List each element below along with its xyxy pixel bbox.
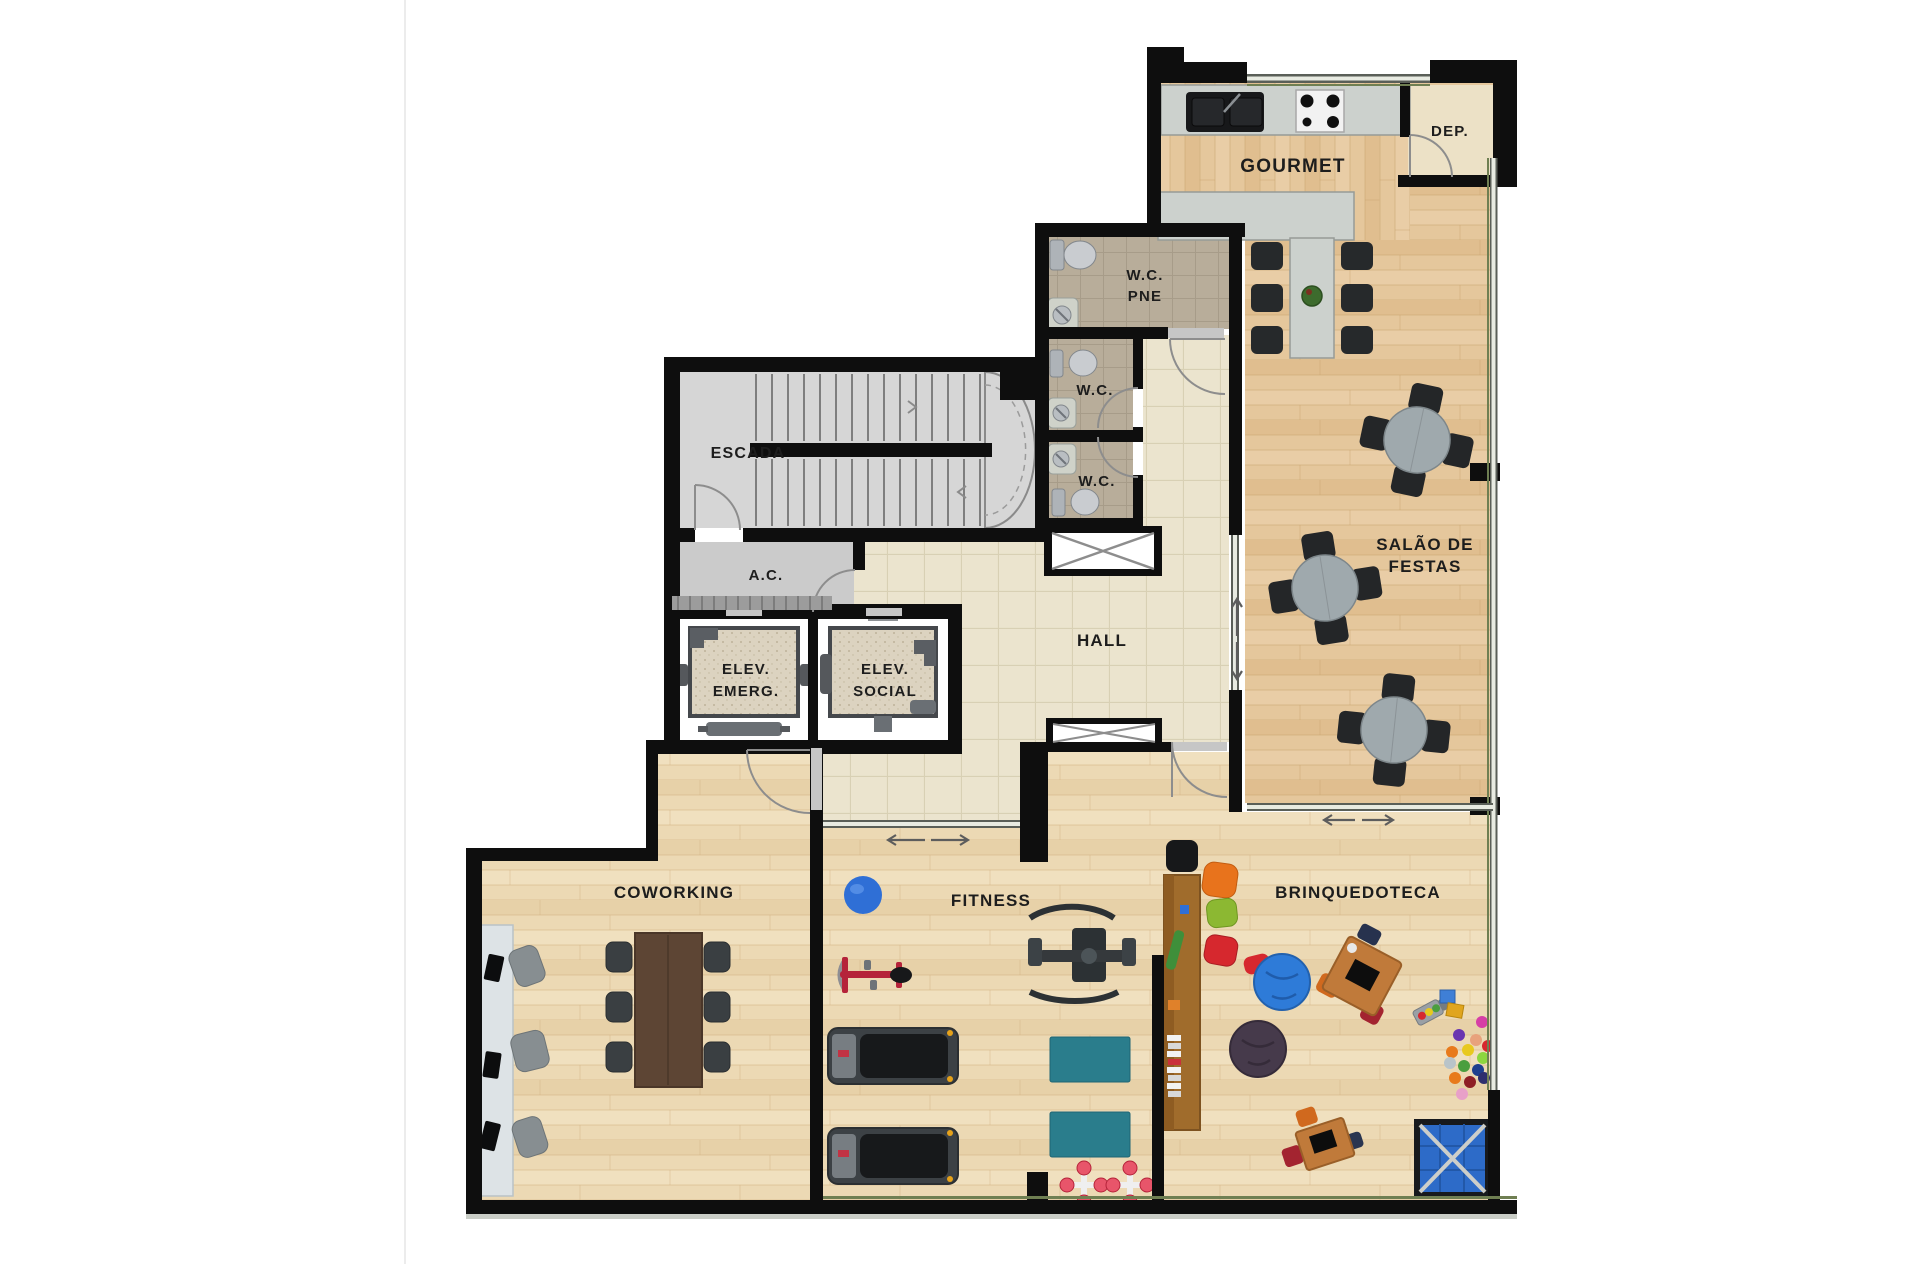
toilet-part (1050, 240, 1064, 270)
toilet (1050, 240, 1096, 270)
exercise-bike-part (864, 960, 871, 970)
walls-part (1000, 357, 1047, 400)
walls-part (853, 542, 865, 570)
walls-part (466, 848, 658, 861)
book-stack-part (1167, 1083, 1181, 1089)
window-east-facade (1487, 158, 1498, 1090)
scattered-balls-part (1476, 1016, 1488, 1028)
walls-part (646, 740, 962, 754)
walls-part (1020, 752, 1048, 862)
walls-part (1035, 327, 1168, 339)
sliding-door-fitness-part (823, 822, 1020, 826)
walls-part (1133, 427, 1143, 439)
dumbbell-set-part (1060, 1178, 1074, 1192)
brinquedoteca-items-part (1168, 1000, 1180, 1010)
walls-part (1147, 62, 1247, 83)
stair-handrail (750, 443, 992, 457)
label-elev-social-2: SOCIAL (853, 683, 917, 700)
walls-part (1488, 1090, 1500, 1202)
scattered-balls-part (1456, 1088, 1468, 1100)
exercise-mat (1050, 1037, 1130, 1082)
label-escada: ESCADA (711, 445, 786, 462)
ac-grill (672, 596, 832, 610)
book-stack-part (1167, 1051, 1181, 1057)
gourmet-kitchen-part (1230, 98, 1262, 126)
floor-cushion (1166, 840, 1198, 872)
exercise-bike-part (870, 980, 877, 990)
floor-corridor (1143, 335, 1229, 535)
label-salao-1: SALÃO DE (1376, 534, 1473, 554)
brinquedoteca-items-part (1180, 905, 1189, 914)
sliding-door-fitness-part (823, 826, 1020, 828)
elevator-social-cab-part (910, 700, 936, 714)
window-gourmet-top-part (1247, 81, 1430, 84)
window-east-facade-part (1496, 158, 1498, 1090)
label-wc-middle: W.C. (1076, 382, 1113, 399)
ac-grill-part (672, 596, 832, 610)
page-edge-line (404, 0, 406, 1264)
bean-bag-blue (1254, 954, 1310, 1010)
kitchen-stove (1296, 90, 1344, 132)
floor-plan: GOURMET DEP. W.C. PNE W.C. W.C. ESCADA A… (0, 0, 1920, 1264)
elevator-emerg-cab-part (698, 726, 708, 732)
toilet (1050, 350, 1097, 377)
walls-part (664, 604, 680, 754)
scattered-balls-part (1444, 1057, 1456, 1069)
wc-sink (1048, 444, 1076, 474)
window-gourmet-top (1247, 74, 1430, 86)
chair (704, 992, 730, 1022)
toilet-part (1064, 241, 1096, 269)
walls-part (1133, 475, 1143, 530)
sliding-door-fitness-part (823, 820, 1020, 822)
gourmet-dining-set-part (1251, 242, 1283, 270)
chair (704, 942, 730, 972)
walls-part (1147, 76, 1161, 236)
label-elev-emerg-1: ELEV. (722, 661, 770, 678)
walls-part (1400, 78, 1410, 137)
label-elev-social-1: ELEV. (861, 661, 909, 678)
book-stack-part (1168, 1075, 1181, 1081)
sliding-door-salao-brinquedoteca-part (1247, 803, 1493, 805)
treadmill-part (947, 1176, 953, 1182)
kitchen-stove-part (1301, 95, 1314, 108)
chair (606, 992, 632, 1022)
exercise-ball (844, 876, 882, 914)
scattered-balls-part (1464, 1076, 1476, 1088)
pouf-red (1203, 933, 1240, 967)
walls-part (743, 528, 1035, 542)
toilet-part (1069, 350, 1097, 376)
book-stack-part (1168, 1091, 1181, 1097)
book-stack-part (1167, 1035, 1181, 1041)
label-wc-lower: W.C. (1078, 473, 1115, 490)
door-thresholds-part (811, 748, 822, 810)
walls-part (948, 604, 962, 754)
ball-pit (1417, 1122, 1488, 1195)
elevator-emerg-cab-part (706, 722, 782, 736)
book-stack-part (1167, 1067, 1181, 1073)
scattered-balls-part (1449, 1072, 1461, 1084)
walls-part (1398, 175, 1517, 187)
chair (606, 1042, 632, 1072)
table-plant (1302, 286, 1322, 306)
label-ac: A.C. (749, 567, 784, 584)
wc-sink (1048, 298, 1078, 332)
dumbbell-set-part (1123, 1161, 1137, 1175)
label-dep: DEP. (1431, 123, 1469, 140)
pouf-orange (1201, 861, 1239, 899)
toilet (1052, 489, 1099, 516)
gourmet-dining-set-part (1251, 284, 1283, 312)
label-coworking: COWORKING (614, 883, 734, 902)
gourmet-dining-set (1251, 238, 1373, 358)
treadmill-part (860, 1034, 948, 1078)
window-gourmet-top-part (1247, 77, 1430, 81)
elevator-emerg-cab (676, 619, 812, 740)
label-salao-2: FESTAS (1388, 557, 1461, 576)
walls-part (1229, 690, 1242, 812)
chair (606, 942, 632, 972)
exercise-mat (1050, 1112, 1130, 1157)
treadmill (828, 1028, 958, 1084)
pouf-green (1206, 898, 1239, 929)
label-elev-emerg-2: EMERG. (713, 683, 779, 700)
toilet-part (1052, 489, 1065, 516)
window-east-facade-part (1490, 158, 1492, 1090)
treadmill (828, 1128, 958, 1184)
gourmet-dining-set-part (1341, 326, 1373, 354)
walls-part (1035, 223, 1245, 237)
dumbbell-set-part (1077, 1161, 1091, 1175)
window-gourmet-top-part (1247, 84, 1430, 86)
floor-hall-east-strip (960, 604, 1047, 742)
bean-bag-purple (1230, 1021, 1286, 1077)
toilet-part (1050, 350, 1063, 377)
door-thresholds-part (866, 608, 902, 616)
scattered-balls-part (1458, 1060, 1470, 1072)
door-thresholds-part (1172, 742, 1227, 751)
multi-gym-part (1028, 938, 1042, 966)
label-wc-pne-1: W.C. (1126, 267, 1163, 284)
toilet-part (1071, 489, 1099, 515)
treadmill-part (838, 1050, 849, 1057)
label-fitness: FITNESS (951, 891, 1031, 910)
floor-plan-page: GOURMET DEP. W.C. PNE W.C. W.C. ESCADA A… (0, 0, 1920, 1264)
door-thresholds-part (1168, 328, 1224, 338)
treadmill-part (860, 1134, 948, 1178)
scattered-balls-part (1446, 1046, 1458, 1058)
scattered-balls-part (1462, 1044, 1474, 1056)
south-facade-shadow (466, 1214, 1517, 1219)
label-wc-pne-2: PNE (1128, 288, 1162, 305)
label-hall: HALL (1077, 631, 1127, 650)
gourmet-dining-set-part (1306, 289, 1312, 295)
sliding-door-salao-brinquedoteca-part (1247, 809, 1493, 811)
sliding-door-fitness (823, 820, 1020, 828)
gourmet-dining-set-part (1341, 284, 1373, 312)
toy-block (1440, 990, 1455, 1003)
multi-gym-part (1122, 938, 1136, 966)
book-stack-part (1168, 1043, 1181, 1049)
scattered-balls-part (1470, 1034, 1482, 1046)
gourmet-dining-set-part (1341, 242, 1373, 270)
sliding-door-salao-brinquedoteca (1247, 803, 1493, 811)
treadmill-part (838, 1150, 849, 1157)
kitchen-stove-part (1327, 95, 1340, 108)
exercise-bike-part (890, 967, 912, 983)
sliding-door-salao-brinquedoteca-part (1247, 805, 1493, 809)
wc-sink (1048, 398, 1076, 428)
walls-part (466, 848, 482, 1214)
south-glass-line (823, 1196, 1517, 1199)
walls-part (466, 1200, 1517, 1214)
window-east-facade-part (1487, 158, 1489, 1090)
treadmill-part (947, 1076, 953, 1082)
walls-part (646, 754, 658, 861)
dumbbell-set-part (1140, 1178, 1154, 1192)
window-east-facade-part (1492, 158, 1496, 1090)
gourmet-dining-set-part (1251, 326, 1283, 354)
chair (704, 1042, 730, 1072)
walls-part (664, 357, 680, 542)
scattered-balls-part (1453, 1029, 1465, 1041)
kitchen-stove-part (1303, 118, 1312, 127)
elevator-social-cab-part (820, 654, 832, 694)
treadmill-part (947, 1030, 953, 1036)
multi-gym-part (1081, 948, 1097, 964)
walls-part (1035, 430, 1143, 442)
walls-part (664, 357, 1047, 372)
treadmill-part (947, 1130, 953, 1136)
dumbbell-set-part (1106, 1178, 1120, 1192)
book-stack-part (1168, 1059, 1181, 1065)
label-gourmet: GOURMET (1240, 156, 1346, 177)
kitchen-stove-part (1327, 116, 1339, 128)
elevator-social-cab-part (874, 716, 892, 732)
floor-hall-sliver (854, 542, 1047, 604)
toy-block (1446, 1003, 1464, 1019)
walls-part (1229, 223, 1242, 535)
fitness-equipment-part (850, 884, 864, 894)
elevator-emerg-cab-part (780, 726, 790, 732)
sliding-door-hall-salao-part (1231, 535, 1233, 690)
walls-part (810, 742, 823, 1200)
walls-part (664, 528, 695, 542)
label-brinquedoteca: BRINQUEDOTECA (1275, 883, 1441, 902)
window-gourmet-top-part (1247, 74, 1430, 77)
walls-part (1152, 955, 1164, 1200)
walls-part (1133, 339, 1143, 389)
walls-part (808, 612, 818, 740)
gourmet-kitchen-part (1192, 98, 1224, 126)
